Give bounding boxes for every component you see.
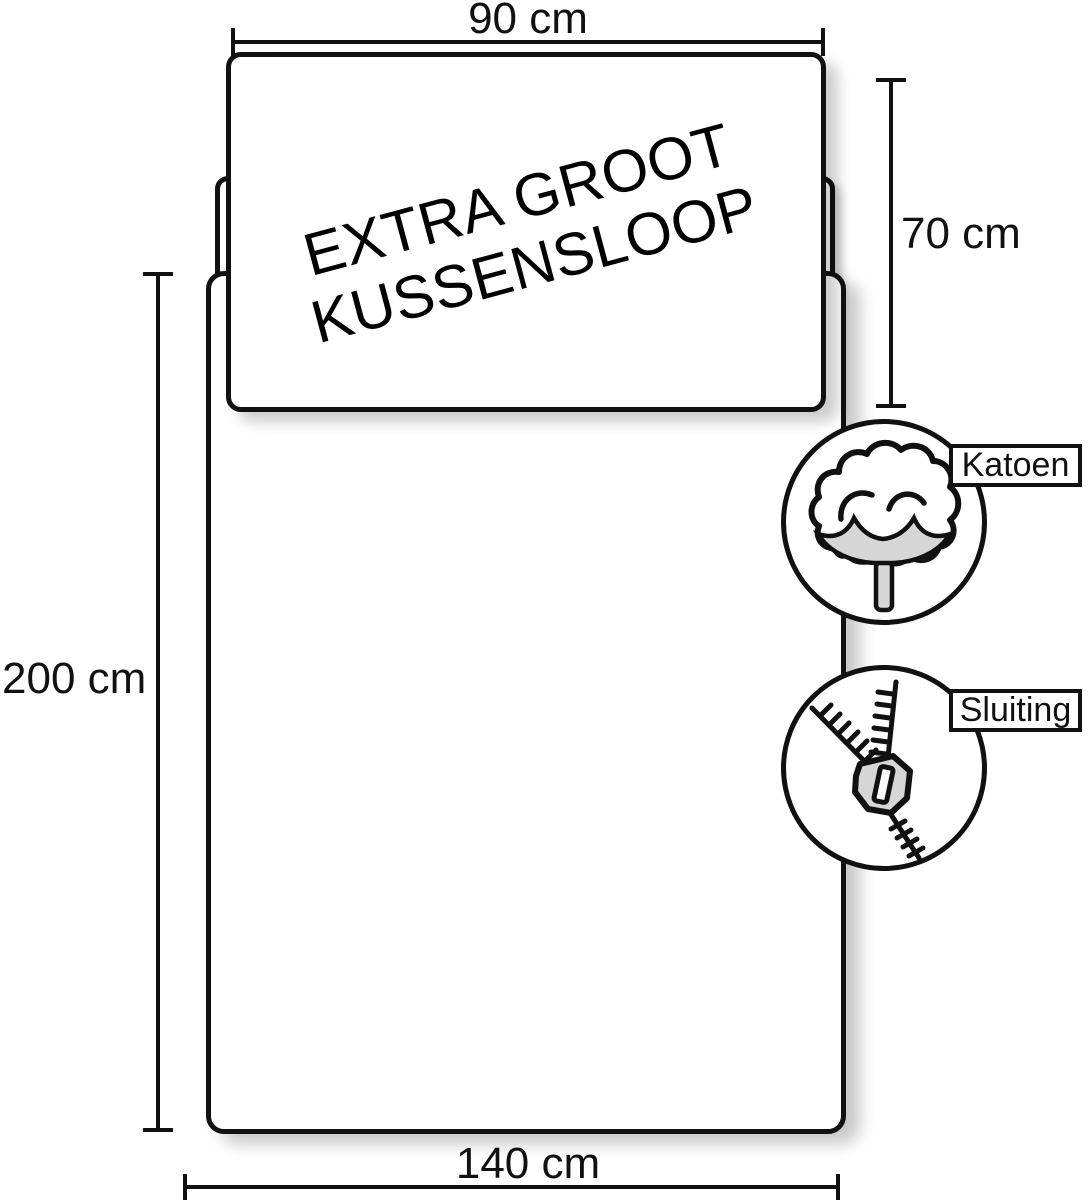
pillow-height-dimension-label: 70 cm [901, 212, 1021, 256]
duvet-length-dimension-label: 200 cm [2, 657, 146, 701]
cotton-badge-label: Katoen [949, 444, 1082, 487]
duvet-width-dimension-line [183, 1185, 840, 1189]
pillow-width-dimension-line [231, 40, 825, 44]
pillowcase: EXTRA GROOT KUSSENSLOOP [226, 52, 826, 412]
pillow-height-dimension-line [889, 78, 893, 408]
cotton-stem [876, 562, 892, 610]
closure-badge-label: Sluiting [949, 689, 1082, 732]
zipper-closed-tape [890, 813, 923, 858]
duvet-width-dimension-label: 140 cm [328, 1142, 728, 1186]
bedding-dimensions-diagram: 90 cm 70 cm 200 cm 140 cm EXTRA GROOT KU… [0, 0, 1088, 1200]
duvet-length-dimension-line [156, 272, 160, 1132]
pillow-width-dimension-label: 90 cm [328, 0, 728, 41]
pillowcase-title: EXTRA GROOT KUSSENSLOOP [196, 0, 856, 477]
closure-badge-text: Sluiting [960, 691, 1072, 730]
cotton-badge-text: Katoen [962, 446, 1070, 485]
